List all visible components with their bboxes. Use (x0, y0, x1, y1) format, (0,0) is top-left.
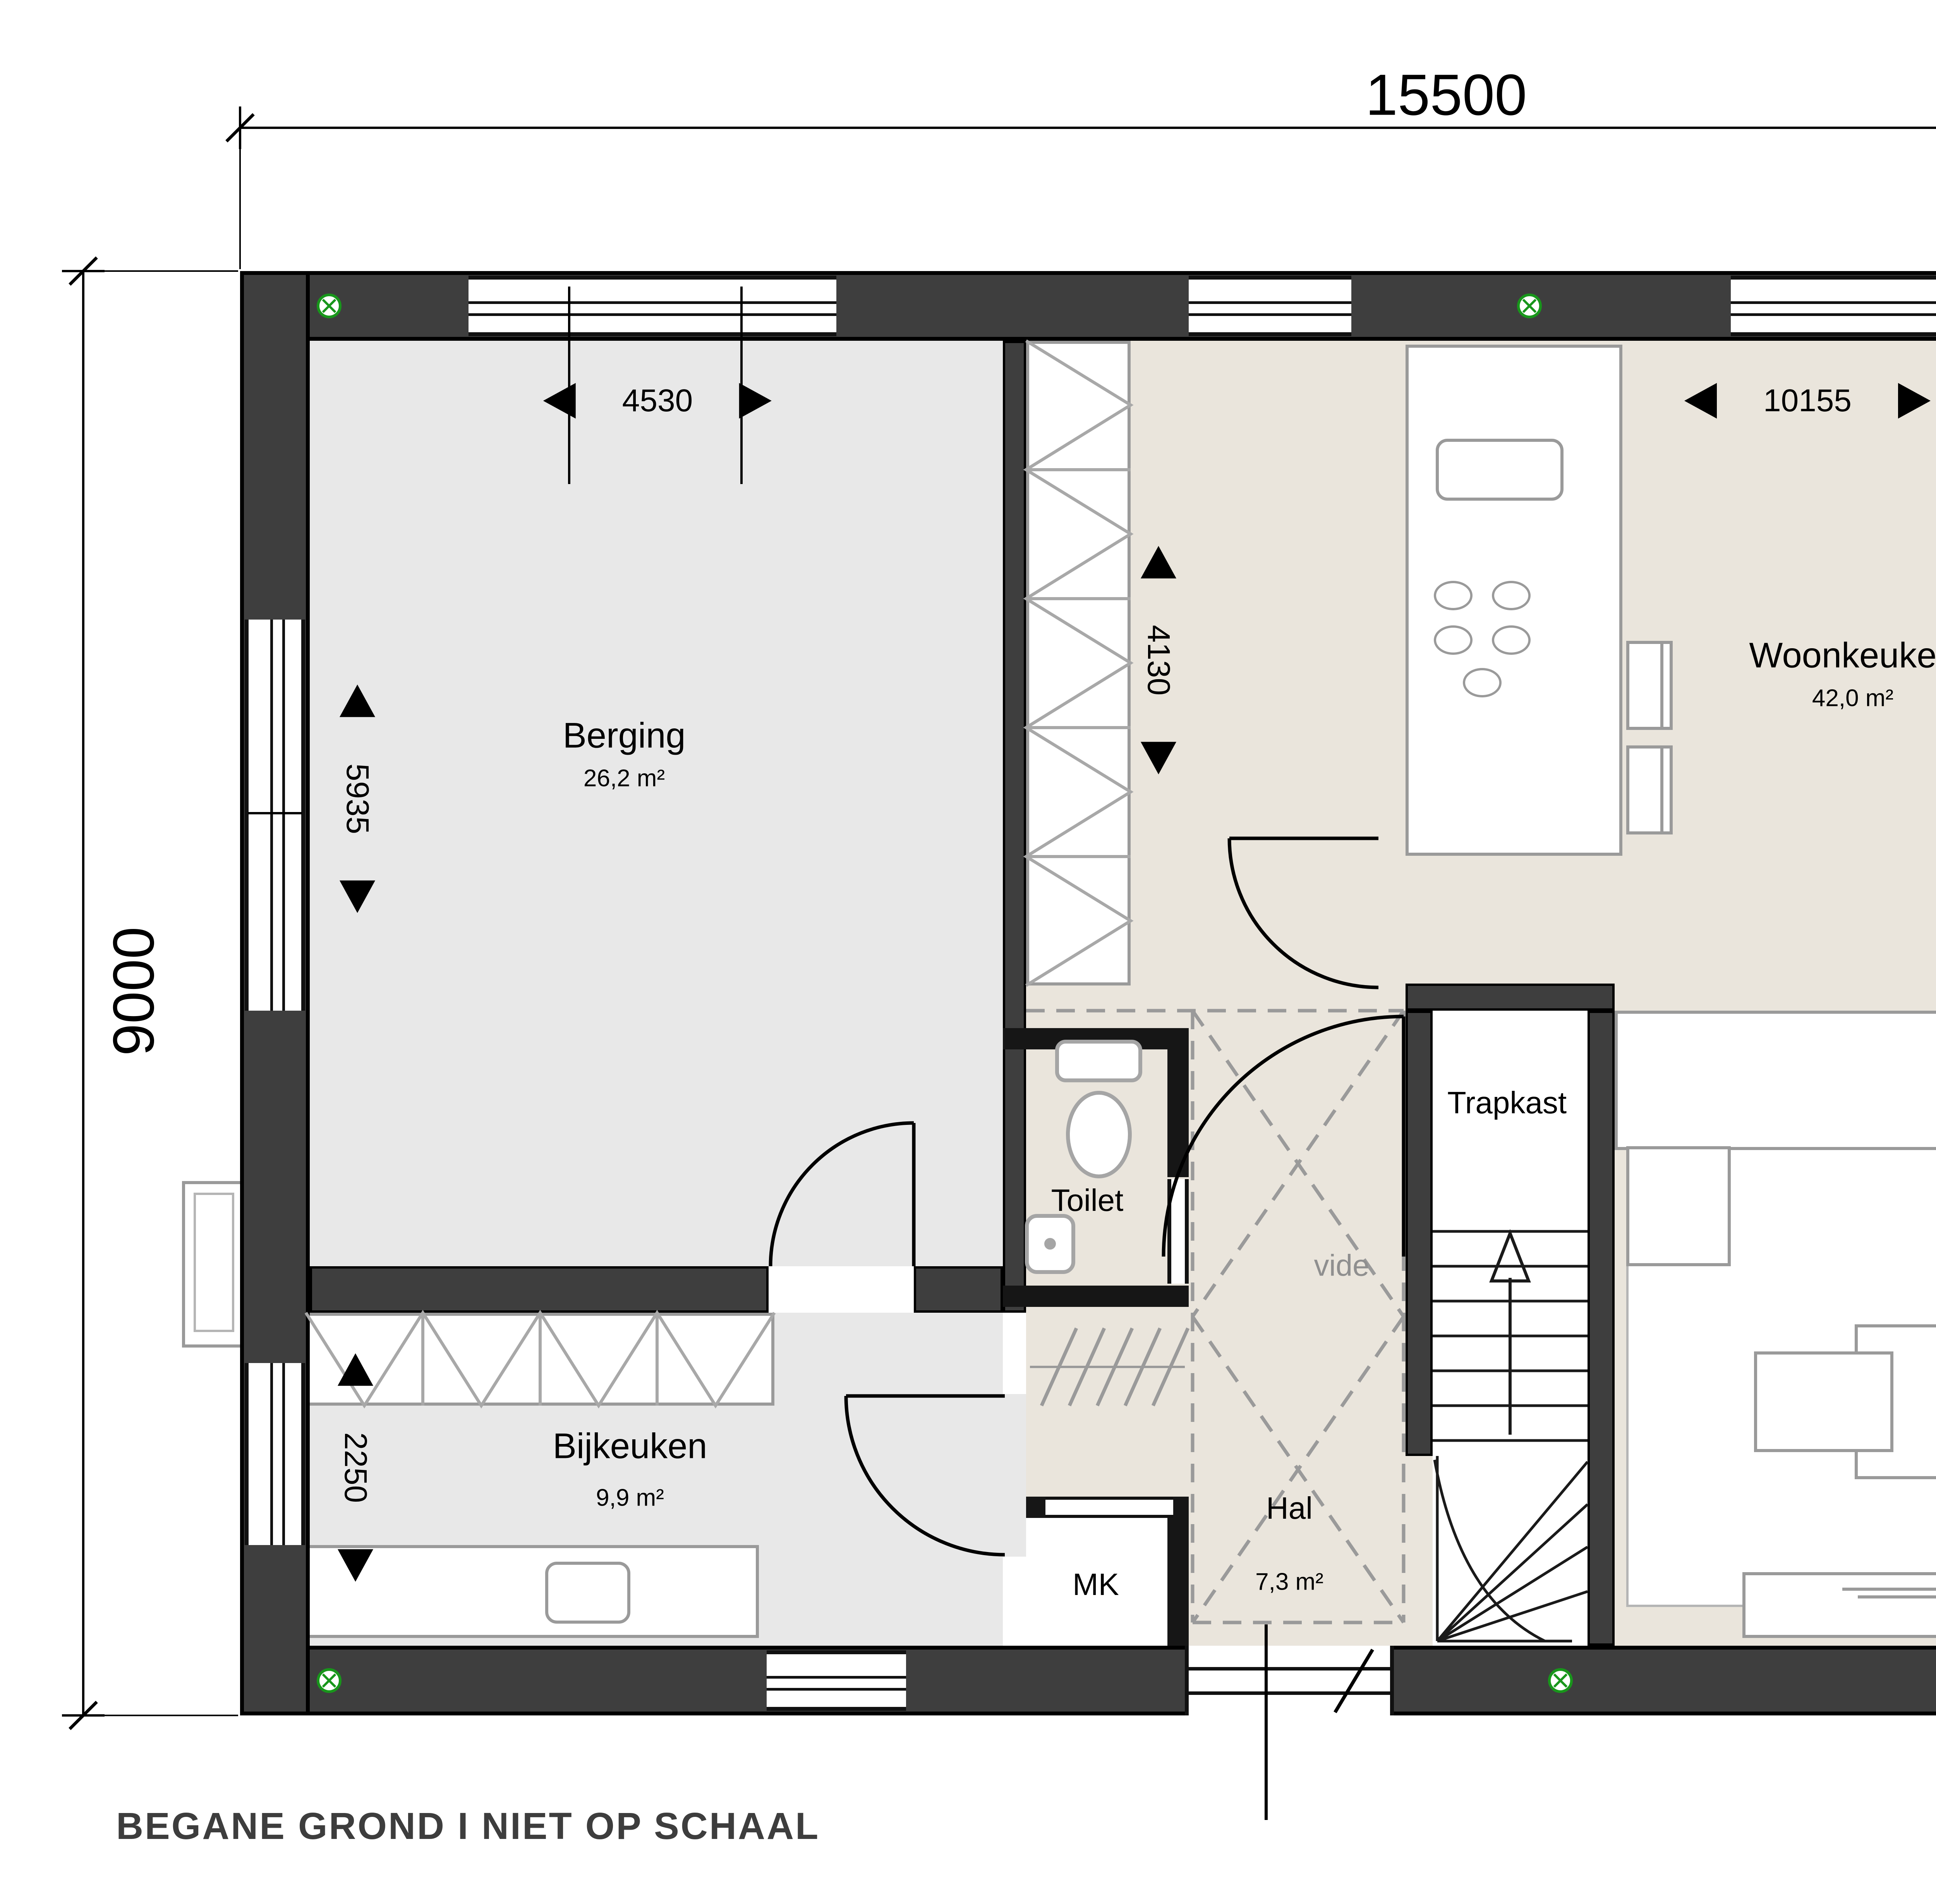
door-berging (771, 1123, 914, 1266)
door-bijkeuken (846, 1396, 1005, 1555)
dim-berging-width: 4530 (543, 383, 772, 419)
dim-value: 10155 (1763, 383, 1852, 419)
bijkeuken-closet-pattern (306, 1313, 774, 1406)
dim-arrow-down-icon (1141, 742, 1176, 774)
dim-arrow-up-icon (1141, 546, 1176, 579)
dim-value: 4130 (1140, 625, 1177, 695)
room-area-berging: 26,2 m² (584, 765, 665, 792)
room-label-trapkast: Trapkast (1447, 1085, 1567, 1121)
floor-plan: Berging 26,2 m² Woonkeuken 42,0 m² Woonk… (0, 0, 1936, 1904)
dim-hall-depth: 4130 (1140, 546, 1177, 774)
dim-value: 5935 (339, 764, 376, 834)
vent-icon-1 (317, 294, 342, 318)
linework-overlay (0, 0, 1936, 1904)
dim-arrow-up-icon (338, 1353, 373, 1386)
room-label-berging: Berging (563, 716, 685, 756)
hall-closet-pattern (1026, 341, 1131, 985)
room-area-woonkeuken: 42,0 m² (1812, 685, 1893, 712)
dim-arrow-up-icon (340, 685, 375, 717)
toilet-fixture (1057, 1042, 1140, 1176)
front-door-leaf (1335, 1650, 1373, 1712)
dim-arrow-left-icon (1684, 383, 1717, 419)
room-area-hal: 7,3 m² (1255, 1568, 1323, 1596)
room-label-mk: MK (1073, 1567, 1119, 1602)
dim-bijkeuken-height: 2250 (337, 1353, 374, 1582)
dim-berging-height: 5935 (339, 685, 376, 913)
dim-value: 2250 (337, 1432, 374, 1503)
hatch-lines (1030, 1328, 1188, 1406)
door-woonkeuken-passage (1229, 838, 1378, 987)
room-label-woonkeuken: Woonkeuken (1749, 635, 1936, 676)
vent-icon-2 (1517, 294, 1542, 318)
dim-arrow-right-icon (739, 383, 772, 419)
stairs-winders (1435, 1456, 1588, 1641)
dim-total-height: 9000 (100, 927, 167, 1056)
dim-arrow-right-icon (1898, 383, 1931, 419)
dim-total-width: 15500 (1365, 62, 1527, 129)
dim-arrow-left-icon (543, 383, 576, 419)
room-label-hal: Hal (1266, 1490, 1313, 1526)
dim-line-top (227, 106, 1936, 269)
room-label-vide: vide (1314, 1248, 1369, 1283)
dim-value: 4530 (622, 383, 693, 419)
witness-lines (248, 278, 1936, 1708)
dim-arrow-down-icon (338, 1549, 373, 1582)
vent-icon-5 (1548, 1668, 1573, 1693)
room-label-toilet: Toilet (1051, 1183, 1124, 1218)
vent-icon-4 (317, 1668, 342, 1693)
room-label-bijkeuken: Bijkeuken (553, 1426, 707, 1467)
room-area-bijkeuken: 9,9 m² (596, 1484, 664, 1512)
toilet-sink (1027, 1216, 1073, 1272)
door-hal-woonkeuken (1164, 1016, 1404, 1257)
dim-woonkeuken-width: 10155 (1684, 383, 1931, 419)
dim-arrow-down-icon (340, 881, 375, 913)
page-title: BEGANE GROND I NIET OP SCHAAL (116, 1804, 820, 1848)
